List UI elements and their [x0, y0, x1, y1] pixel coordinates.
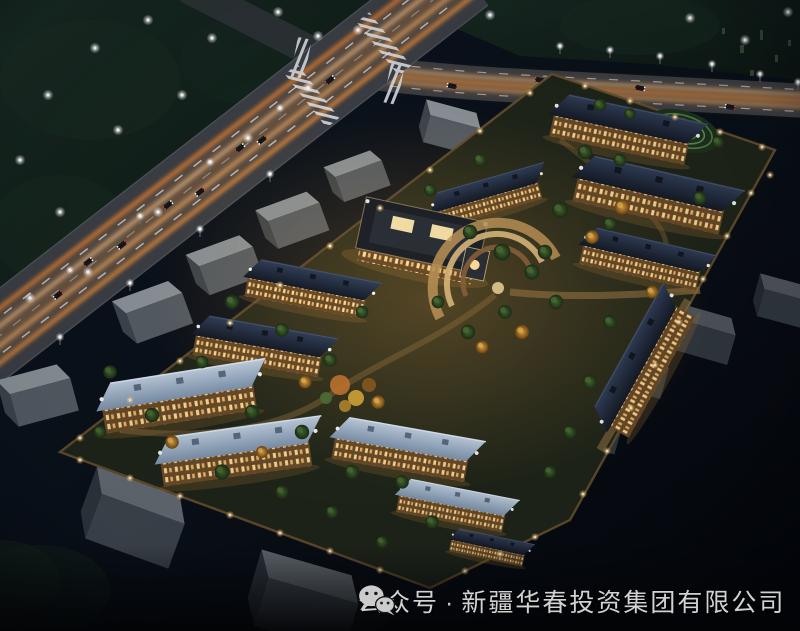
watermark-text: 公众号·新疆华春投资集团有限公司 [358, 583, 785, 619]
vignette [0, 0, 800, 631]
watermark-company-name: 新疆华春投资集团有限公司 [461, 589, 785, 617]
watermark-separator: · [445, 589, 455, 617]
night-aerial-rendering: 公众号·新疆华春投资集团有限公司 [0, 0, 800, 631]
wechat-icon [358, 584, 396, 616]
aerial-scene [0, 0, 800, 631]
watermark-caption: 公众号·新疆华春投资集团有限公司 [358, 584, 785, 618]
